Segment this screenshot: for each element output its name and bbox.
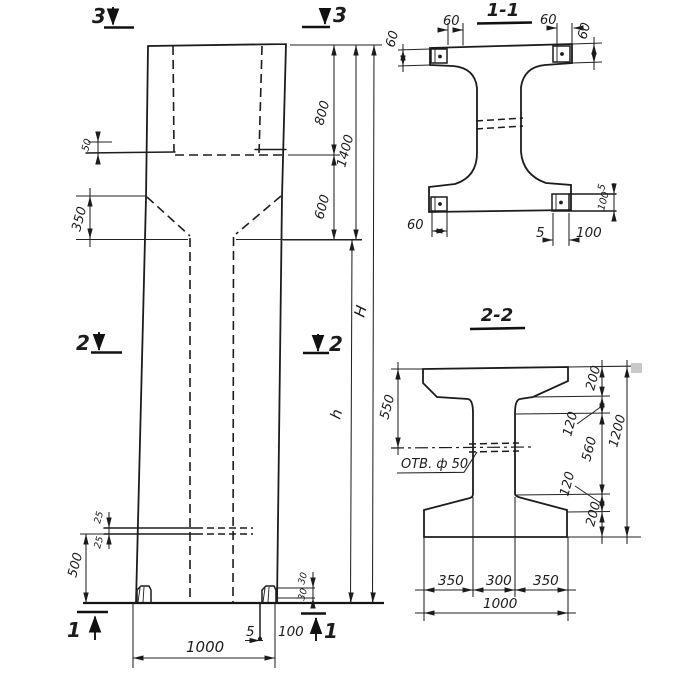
dim-200-bottom: 200 [583,500,604,528]
mark-1-right: 1 [324,619,338,643]
dim-30-upper: 30 [296,571,310,586]
dim-100-base: 100 [278,624,304,640]
dim-1000-base: 1000 [186,638,224,656]
mid-plates-hidden [196,528,253,534]
dim-350-left: 350 [438,573,464,589]
dim-350: 350 [69,205,90,233]
dim-5-base: 5 [246,624,255,640]
section-2-2-arrows [398,368,627,613]
mark-2-right: 2 [329,332,343,356]
dim-1000: 1000 [483,596,517,612]
section-2-2-view: 2-2 ОТВ. ф 50 [377,305,642,621]
mark-1-left: 1 [67,618,81,642]
section-2-2-dim-lines [398,360,627,613]
dim-500: 500 [65,551,86,579]
mark-2-left: 2 [76,331,90,355]
mid-plates [104,528,196,534]
dim-5-bottom: 5 [536,225,545,241]
head-plate-lines [86,150,286,154]
dim-30-lower: 30 [296,587,310,602]
drawing-canvas: 3 3 2 2 1 1 800 1400 600 H h 350 50 500 … [0,0,700,700]
section-1-1-title-underline [477,23,532,24]
dim-60-top-left: 60 [443,14,460,29]
head-slot-hidden [173,46,286,155]
dim-60-bottom-left: 60 [407,218,424,233]
mark-3-right: 3 [333,3,347,27]
drawing-sheet: 3 3 2 2 1 1 800 1400 600 H h 350 50 500 … [0,0,700,700]
dim-120-upper: 120 [560,410,581,438]
column-outline [136,44,286,603]
dim-1400: 1400 [334,133,357,169]
dim-60-left: 60 [383,29,402,49]
mark-3-left: 3 [92,4,106,28]
dim-60-top-right: 60 [540,13,557,28]
dim-560: 560 [579,435,600,463]
dim-300: 300 [486,573,512,589]
embedded-plates [431,46,570,211]
elevation-view: 3 3 2 2 1 1 800 1400 600 H h 350 50 500 … [65,3,384,668]
dim-5-side: 5 [596,183,608,192]
dim-h: h [326,407,346,421]
feet-hatch [138,587,269,602]
dim-25-lower: 25 [92,535,106,550]
dim-1200: 1200 [606,413,629,449]
section-1-1-break-lines [476,118,523,129]
dim-350-right: 350 [533,573,559,589]
section-2-2-title: 2-2 [481,305,514,326]
dim-25-upper: 25 [92,510,106,525]
base-feet [137,586,276,603]
dim-100-bottom: 100 [576,225,602,241]
dim-H: H [350,303,370,319]
scan-artifact [631,363,642,373]
dim-550: 550 [377,393,398,421]
extension-lines [76,45,382,668]
hole-centerline [391,447,532,448]
dim-60-right: 60 [575,21,594,41]
hole-label: ОТВ. ф 50 [401,457,468,472]
dim-800: 800 [312,99,333,127]
dim-50: 50 [80,138,94,153]
funnel-hidden [147,196,281,602]
section-2-2-title-underline [470,328,525,329]
dim-200-top: 200 [583,364,604,392]
section-1-1-view: 1-1 [383,0,616,246]
section-1-1-title: 1-1 [487,0,520,21]
dim-600: 600 [312,193,333,221]
